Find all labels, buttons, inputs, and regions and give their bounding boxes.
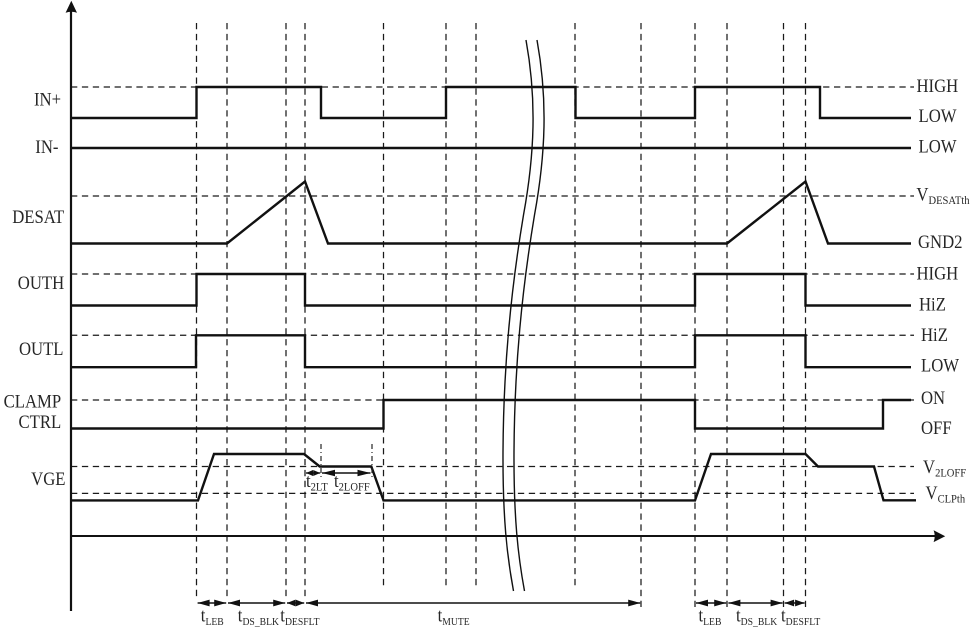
svg-text:ON: ON <box>921 387 945 408</box>
svg-text:HiZ: HiZ <box>919 294 946 315</box>
svg-text:OUTL: OUTL <box>19 338 64 359</box>
svg-text:OUTH: OUTH <box>18 272 64 293</box>
svg-text:LOW: LOW <box>919 105 957 126</box>
svg-text:HIGH: HIGH <box>917 75 959 96</box>
svg-text:CTRL: CTRL <box>19 411 62 432</box>
svg-text:VGE: VGE <box>31 468 65 489</box>
svg-text:OFF: OFF <box>921 417 952 438</box>
svg-text:IN+: IN+ <box>34 89 61 110</box>
svg-text:LOW: LOW <box>919 136 957 157</box>
svg-text:IN-: IN- <box>35 136 58 157</box>
svg-text:GND2: GND2 <box>918 231 963 252</box>
svg-text:HIGH: HIGH <box>917 263 959 284</box>
svg-text:HiZ: HiZ <box>921 324 948 345</box>
svg-text:DESAT: DESAT <box>12 206 64 227</box>
svg-text:CLAMP: CLAMP <box>4 391 62 412</box>
svg-text:LOW: LOW <box>921 355 959 376</box>
